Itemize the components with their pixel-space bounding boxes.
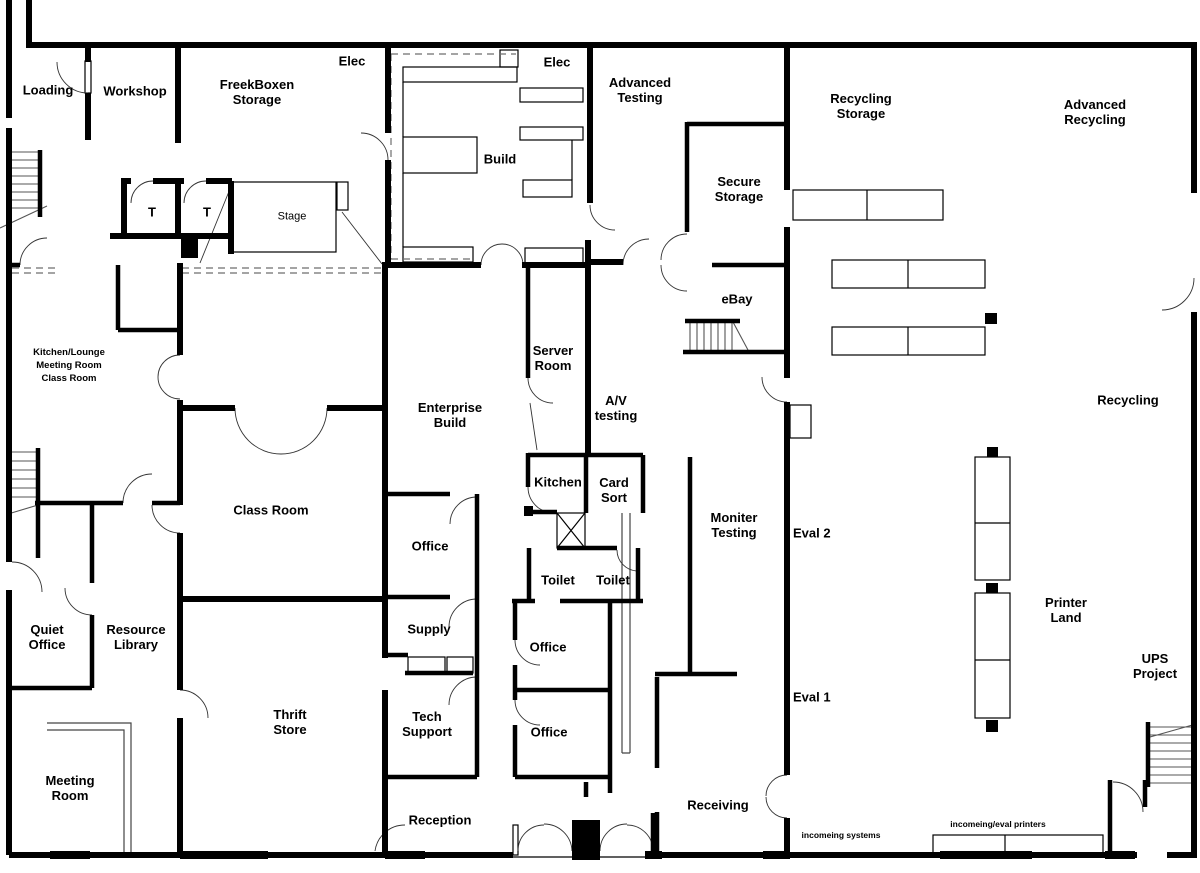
room-label-meeting-room: Meeting Room [38,773,102,803]
floor-plan: Loading Workshop FreekBoxen Storage Elec… [0,0,1200,873]
note-meeting-room: Meeting Room [36,361,101,371]
room-label-t2: T [197,204,217,219]
room-label-moniter-testing: Moniter Testing [701,510,767,540]
room-label-office-upper: Office [518,639,578,654]
room-label-reception: Reception [395,812,485,827]
note-kitchen-lounge: Kitchen/Lounge [33,348,105,358]
room-label-stage: Stage [267,211,317,224]
room-label-quiet-office: Quiet Office [21,622,73,652]
room-label-build: Build [475,151,525,166]
room-label-elec-nw: Elec [332,53,372,68]
room-label-office-enterprise: Office [400,538,460,553]
room-label-toilet-left: Toilet [533,572,583,587]
room-label-kitchen: Kitchen [528,474,588,489]
room-label-workshop: Workshop [95,83,175,98]
room-label-t1: T [142,204,162,219]
room-label-secure-storage: Secure Storage [703,174,775,204]
room-label-ebay: eBay [712,291,762,306]
room-label-av-testing: A/V testing [588,393,644,423]
room-label-eval-2: Eval 2 [793,525,831,540]
room-label-enterprise-build: Enterprise Build [407,400,493,430]
room-label-resource-library: Resource Library [98,622,174,652]
room-label-toilet-right: Toilet [588,572,638,587]
room-label-recycling-storage: Recycling Storage [819,91,903,121]
room-label-server-room: Server Room [525,343,581,373]
room-label-printer-land: Printer Land [1037,595,1095,625]
thin-partitions [47,513,630,855]
room-label-office-lower: Office [519,724,579,739]
room-label-tech-support: Tech Support [390,709,464,739]
main-walls [9,0,1197,855]
room-label-loading: Loading [18,82,78,97]
room-label-advanced-testing: Advanced Testing [598,75,682,105]
room-label-supply: Supply [399,621,459,636]
room-label-freekboxen-storage: FreekBoxen Storage [211,77,303,107]
room-label-elec-mid: Elec [537,54,577,69]
room-label-receiving: Receiving [673,797,763,812]
room-label-eval-1: Eval 1 [793,689,831,704]
room-label-ups-project: UPS Project [1124,651,1186,681]
room-label-recycling: Recycling [1088,392,1168,407]
room-label-advanced-recycling: Advanced Recycling [1049,97,1141,127]
floorplan-drawing [0,0,1200,873]
room-label-thrift-store: Thrift Store [264,707,316,737]
room-label-class-room: Class Room [216,502,326,517]
note-incomeing-eval-printers: incomeing/eval printers [950,820,1045,830]
note-incomeing-systems: incomeing systems [802,831,881,841]
room-label-card-sort: Card Sort [591,475,637,505]
note-class-room: Class Room [42,374,97,384]
